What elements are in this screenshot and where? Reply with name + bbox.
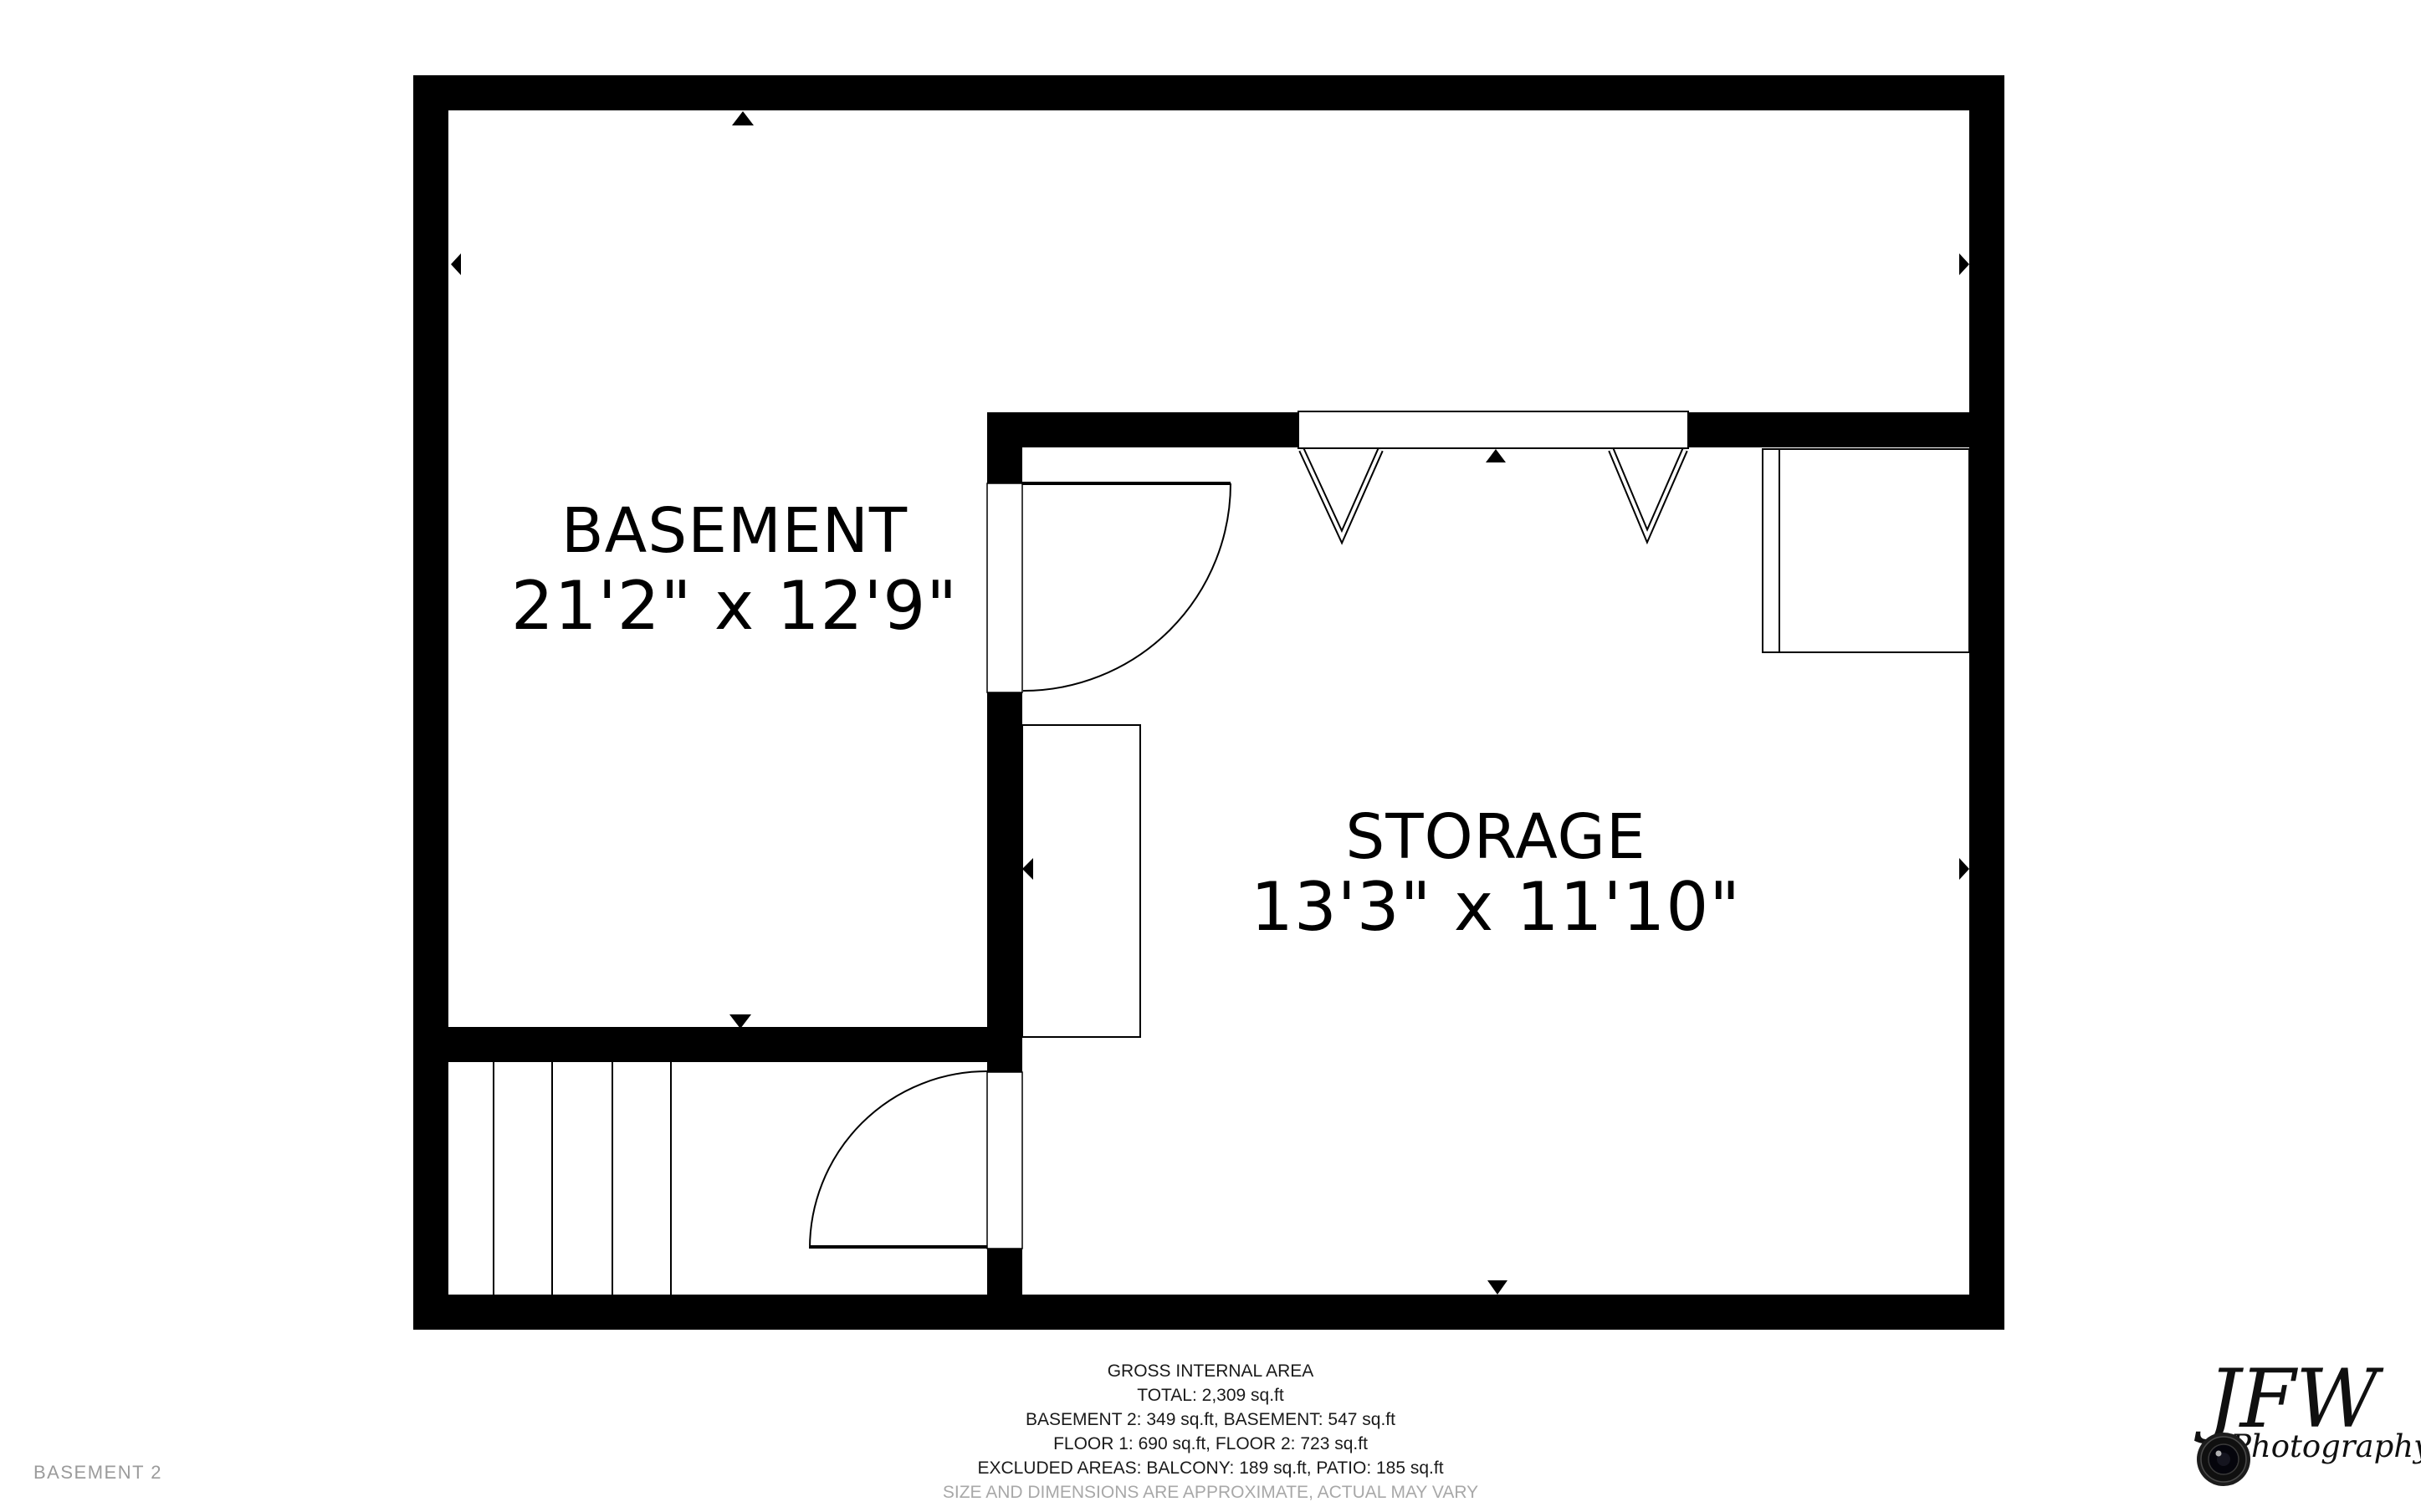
camera-lens-icon [2197, 1433, 2250, 1486]
storage-top-wall-right-segment [1688, 412, 1969, 447]
storage-arrow-down-icon [1487, 1280, 1507, 1295]
fixtures [1022, 449, 1969, 1037]
footer-excluded-line: EXCLUDED AREAS: BALCONY: 189 sq.ft, PATI… [977, 1458, 1443, 1478]
door-storage-opening [987, 483, 1022, 692]
logo: JFW Photography [2193, 1352, 2421, 1486]
outer-wall-right [1969, 75, 2004, 1330]
door-stairs-leaf [810, 1245, 987, 1249]
outer-wall-bottom [413, 1295, 2004, 1330]
logo-subtitle: Photography [2229, 1428, 2421, 1464]
door-stairs-swing-arc [810, 1071, 987, 1249]
footer-floors-line: FLOOR 1: 690 sq.ft, FLOOR 2: 723 sq.ft [1053, 1434, 1368, 1453]
storage-room-dimensions: 13'3" x 11'10" [1251, 868, 1741, 946]
basement-bottom-wall [448, 1027, 1022, 1062]
storage-room-name: STORAGE [1345, 801, 1646, 873]
basement-arrow-up-icon [732, 111, 754, 125]
basement-room-dimensions: 21'2" x 12'9" [511, 567, 958, 645]
storage-arrow-left-icon [1022, 858, 1033, 880]
outer-wall-top [413, 75, 2004, 110]
footer-disclaimer: SIZE AND DIMENSIONS ARE APPROXIMATE, ACT… [943, 1483, 1478, 1502]
window-casement-right-outer [1611, 450, 1685, 536]
storage-tank [1022, 725, 1140, 1037]
door-stairs-opening [987, 1072, 1022, 1249]
door-stairs [810, 1071, 1022, 1249]
basement-arrow-left-icon [451, 253, 461, 275]
interior-vertical-wall-bottom-stub [987, 1249, 1022, 1295]
door-storage-leaf [1022, 482, 1231, 485]
door-storage-swing-arc [1023, 483, 1231, 691]
window-casement-right-inner [1611, 450, 1685, 536]
interior-vertical-wall-middle [987, 692, 1022, 1072]
window-casement-left-outer [1302, 450, 1380, 537]
footer-title: GROSS INTERNAL AREA [1108, 1361, 1314, 1381]
area-summary: GROSS INTERNAL AREA TOTAL: 2,309 sq.ft B… [943, 1361, 1478, 1502]
interior-vertical-wall-upper-stub [987, 412, 1022, 483]
dimension-arrows [451, 111, 1969, 1295]
basement-room-name: BASEMENT [561, 495, 908, 567]
storage-arrow-up-icon [1486, 449, 1506, 462]
page-label: BASEMENT 2 [33, 1462, 162, 1483]
floor-plan-page: BASEMENT 21'2" x 12'9" STORAGE 13'3" x 1… [0, 0, 2421, 1512]
door-storage [987, 482, 1231, 692]
basement-arrow-down-icon [729, 1014, 751, 1029]
window-casement-left-inner [1302, 450, 1380, 537]
storage-window [1298, 411, 1688, 537]
basement-arrow-right-icon [1959, 253, 1969, 275]
window-frame [1298, 411, 1688, 448]
staircase [494, 1062, 671, 1295]
outer-walls [413, 75, 2004, 1330]
lens-highlight [2216, 1451, 2222, 1457]
floor-plan-drawing: BASEMENT 21'2" x 12'9" STORAGE 13'3" x 1… [0, 0, 2421, 1512]
footer-basements-line: BASEMENT 2: 349 sq.ft, BASEMENT: 547 sq.… [1026, 1410, 1395, 1429]
outer-wall-left [413, 75, 448, 1330]
storage-top-wall-left-segment [987, 412, 1298, 447]
footer-total: TOTAL: 2,309 sq.ft [1137, 1386, 1284, 1405]
storage-arrow-right-icon [1959, 858, 1969, 880]
storage-cupboard [1763, 449, 1969, 652]
